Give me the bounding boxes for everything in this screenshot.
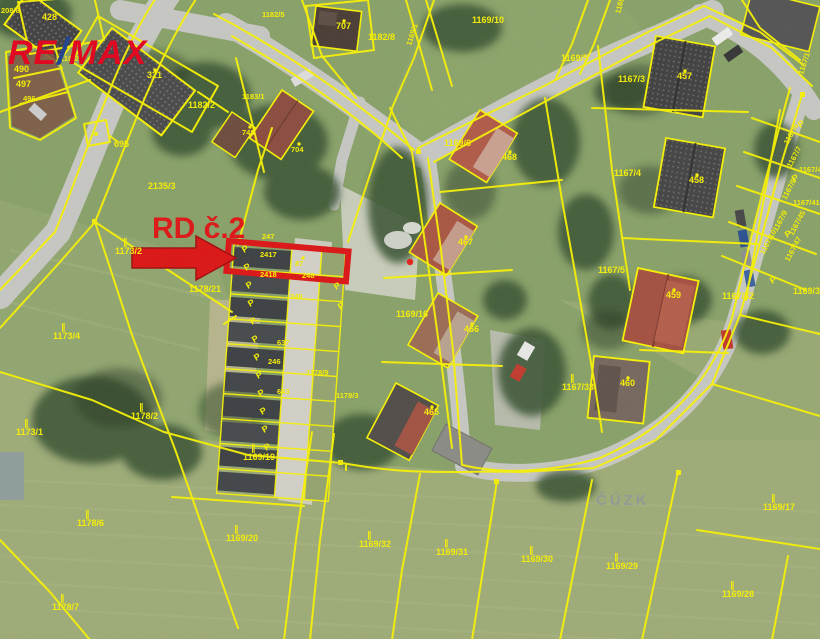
aerial-cadastral-map: RD č.2 208/84282110/24904974963211182/57… [0, 0, 820, 639]
map-canvas[interactable]: RD č.2 208/84282110/24904974963211182/57… [0, 0, 820, 639]
photo-grain-overlay [0, 0, 820, 639]
